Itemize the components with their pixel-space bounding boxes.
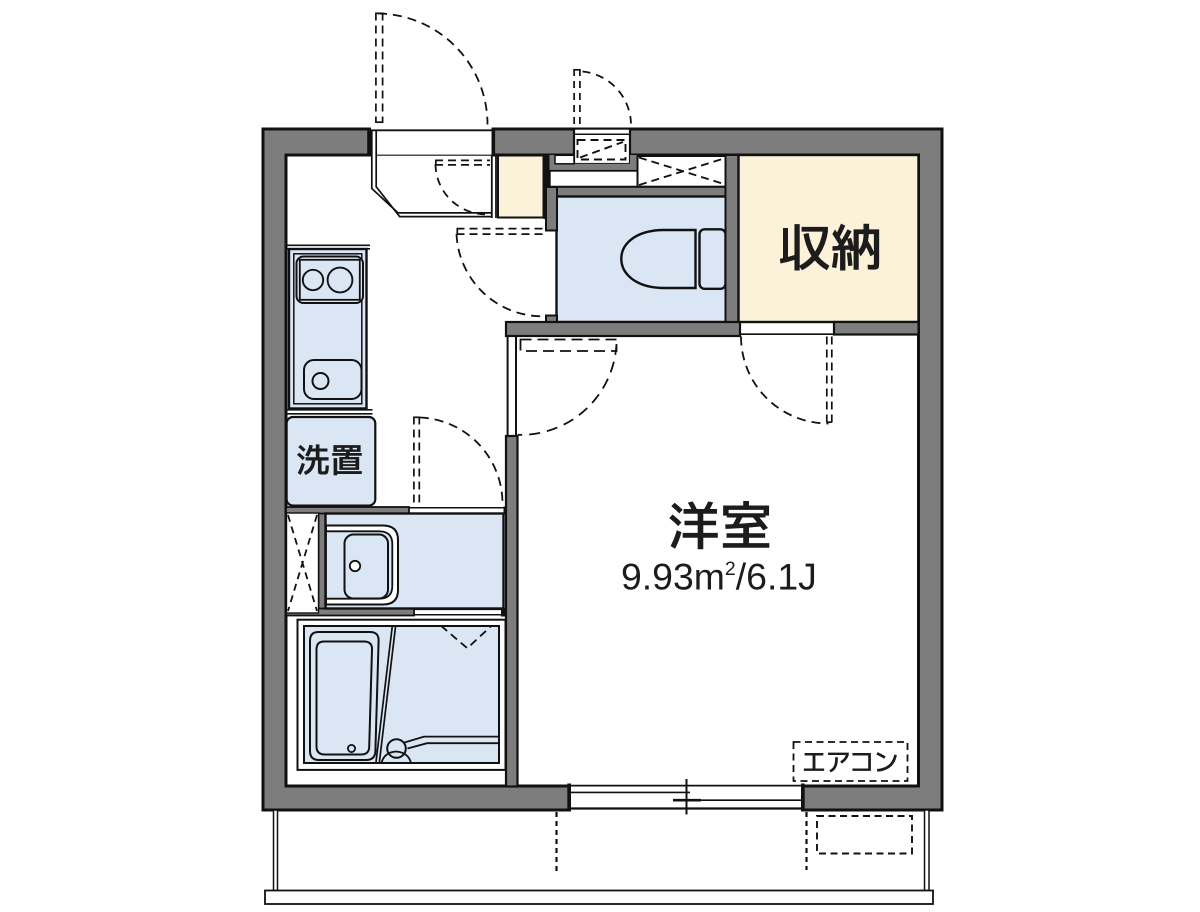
svg-text:9.93m2/6.1J: 9.93m2/6.1J [621, 556, 817, 598]
